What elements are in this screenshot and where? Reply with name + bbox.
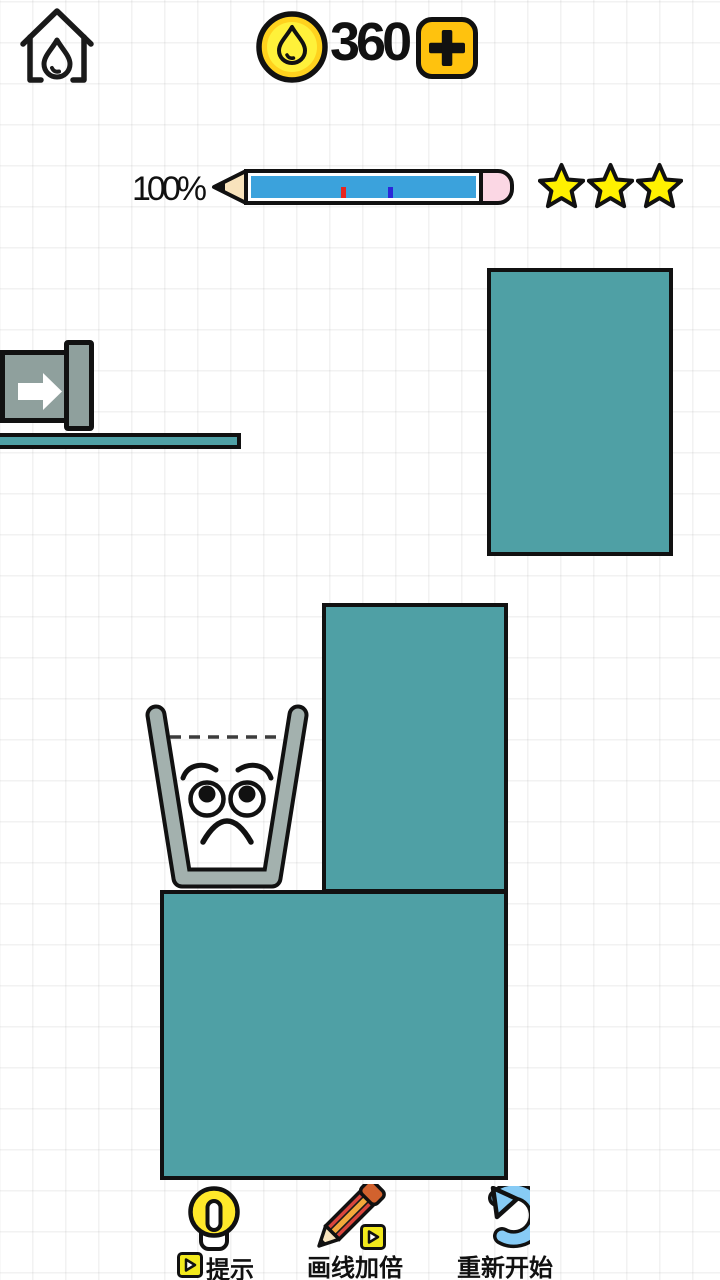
coin-icon	[255, 10, 329, 84]
coin-balance	[255, 10, 329, 89]
block-top-right	[487, 268, 673, 556]
star-icon	[587, 162, 634, 209]
hint-label: 提示	[206, 1250, 254, 1280]
block-middle	[322, 603, 508, 893]
ad-play-icon	[177, 1252, 203, 1278]
ad-play-icon	[360, 1224, 386, 1250]
progress-fill	[251, 176, 476, 198]
sad-face	[183, 765, 271, 842]
progress-marker	[341, 187, 346, 198]
pencil-eraser	[479, 169, 514, 205]
restart-button[interactable]: 重新开始	[448, 1184, 580, 1280]
block-bottom	[160, 890, 508, 1180]
refresh-arrow-icon	[452, 1186, 530, 1252]
stars	[538, 162, 683, 209]
spout-arrow-icon	[5, 355, 65, 418]
water-spout	[0, 350, 70, 423]
progress-marker	[388, 187, 393, 198]
star-icon	[636, 162, 683, 209]
hint-button[interactable]: 提示	[170, 1184, 282, 1280]
pencil-progress-bar	[210, 169, 514, 205]
lightbulb-icon	[184, 1186, 244, 1252]
restart-label: 重新开始	[457, 1248, 553, 1280]
double-line-label: 画线加倍	[307, 1248, 403, 1280]
add-coins-button[interactable]	[416, 17, 478, 79]
pencil-tip-icon	[210, 169, 248, 205]
platform-ledge	[0, 433, 241, 449]
double-line-button[interactable]: 画线加倍	[300, 1182, 432, 1280]
plus-icon	[421, 22, 473, 74]
star-icon	[538, 162, 585, 209]
coin-amount: 360	[330, 11, 408, 73]
home-icon	[16, 3, 98, 89]
game-canvas[interactable]: 360 100%	[0, 0, 720, 1280]
home-button[interactable]	[16, 3, 98, 89]
progress-percent: 100%	[132, 170, 203, 209]
spout-nozzle	[64, 340, 94, 431]
progress-track	[244, 169, 483, 205]
glass-with-sad-face	[141, 700, 313, 894]
